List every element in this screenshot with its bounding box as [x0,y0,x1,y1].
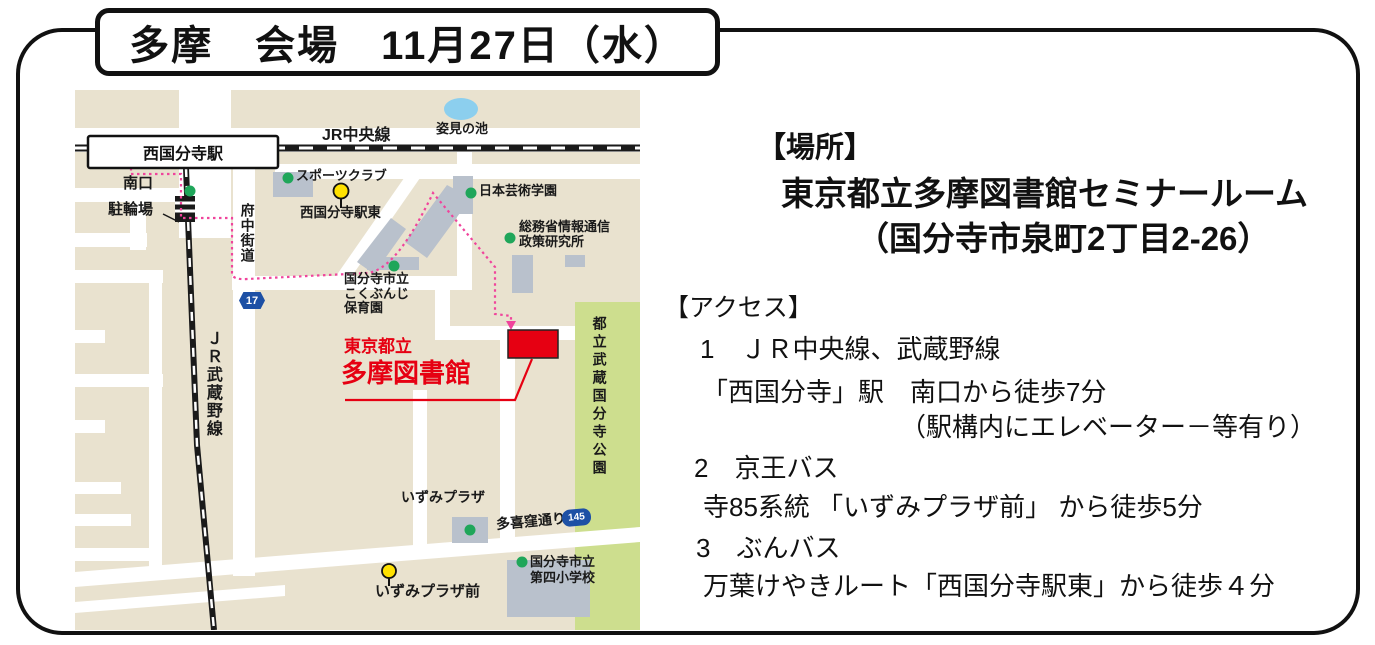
south-exit-label: 南口 [123,176,153,193]
sugatami-pond-label: 姿見の池 [436,122,488,137]
bottom-road [75,585,285,613]
library-building-marker [508,330,558,358]
venue-header: 【場所】 [757,131,873,166]
geijutsu-gakuen-label: 日本芸術学園 [479,184,557,199]
izumi-plaza-label: いずみプラザ [401,490,485,506]
bicycle-parking-label: 駐輪場 [108,202,153,219]
fuchu-kaido-label: 府中街道 [239,203,255,263]
access-item-2-label: 2 京王バス [694,453,838,484]
access-item-1-detail: 「西国分寺」駅 南口から徒歩7分 [702,377,1106,408]
jr-musashino-line-label: ＪＲ武蔵野線 [203,330,221,438]
venue-address: （国分寺市泉町2丁目2-26） [856,219,1270,259]
somusho-label: 総務省情報通信政策研究所 [519,220,610,249]
shogakko-line2: 第四小学校 [530,570,595,585]
hoikuen-label: 国分寺市立こくぶんじ保育園 [344,272,409,316]
hoikuen-line3: 保育園 [344,300,383,315]
station-label: 西国分寺駅 [88,136,278,168]
access-header: 【アクセス】 [664,293,813,323]
jr-chuo-line-label: JR中央線 [322,127,390,145]
hoikuen-dot [389,261,400,272]
route-17-number: 17 [246,295,258,307]
izumi-plaza-mae-label: いずみプラザ前 [375,584,480,601]
bus-stop-izumi-plaza-mae-icon [382,564,396,578]
access-item-2-detail: 寺85系統 「いずみプラザ前」 から徒歩5分 [703,492,1203,523]
access-item-1-note: （駅構内にエレベーター－等有り） [900,412,1316,443]
geijutsu-gakuen-dot [466,188,477,199]
library-label-line1: 東京都立 [344,337,412,356]
park-label: 都立武蔵国分寺公園 [591,316,607,478]
hoikuen-line1: 国分寺市立 [344,271,409,286]
access-item-3-label: 3 ぶんバス [696,533,840,564]
access-map: JR中央線 姿見の池 西国分寺駅 南口 駐輪場 スポーツクラブ 西国分寺駅東 府… [75,90,640,630]
shogakko-line1: 国分寺市立 [530,554,595,569]
library-label-line2: 多摩図書館 [341,359,471,388]
somusho-line2: 政策研究所 [519,234,584,249]
somusho-dot [505,233,516,244]
shogakko-dot [517,557,528,568]
izumi-plaza-dot [465,525,476,536]
venue-name: 東京都立多摩図書館セミナールーム [781,174,1308,214]
south-exit-dot [185,186,196,197]
route-17-shield: 17 [239,292,265,309]
sports-club-dot [283,173,294,184]
title-box: 多摩 会場 11月27日（水） [95,8,720,76]
flyer-page: { "title": "多摩 会場 11月27日（水）", "venue": {… [0,0,1375,645]
route-145-shield: 145 [561,508,591,527]
page-title: 多摩 会場 11月27日（水） [129,13,686,71]
somusho-line1: 総務省情報通信 [519,219,610,234]
shogakko-label: 国分寺市立第四小学校 [530,554,595,587]
hoikuen-line2: こくぶんじ [344,286,409,301]
access-item-1-label: 1 ＪＲ中央線、武蔵野線 [700,334,1000,365]
sugatami-pond-shape [444,98,478,120]
eki-higashi-bus-stop-label: 西国分寺駅東 [300,205,381,220]
route-145-number: 145 [568,511,586,523]
bus-stop-eki-higashi-icon [334,184,349,199]
sports-club-label: スポーツクラブ [296,169,387,184]
access-item-3-detail: 万葉けやきルート「西国分寺駅東」から徒歩４分 [703,571,1275,602]
